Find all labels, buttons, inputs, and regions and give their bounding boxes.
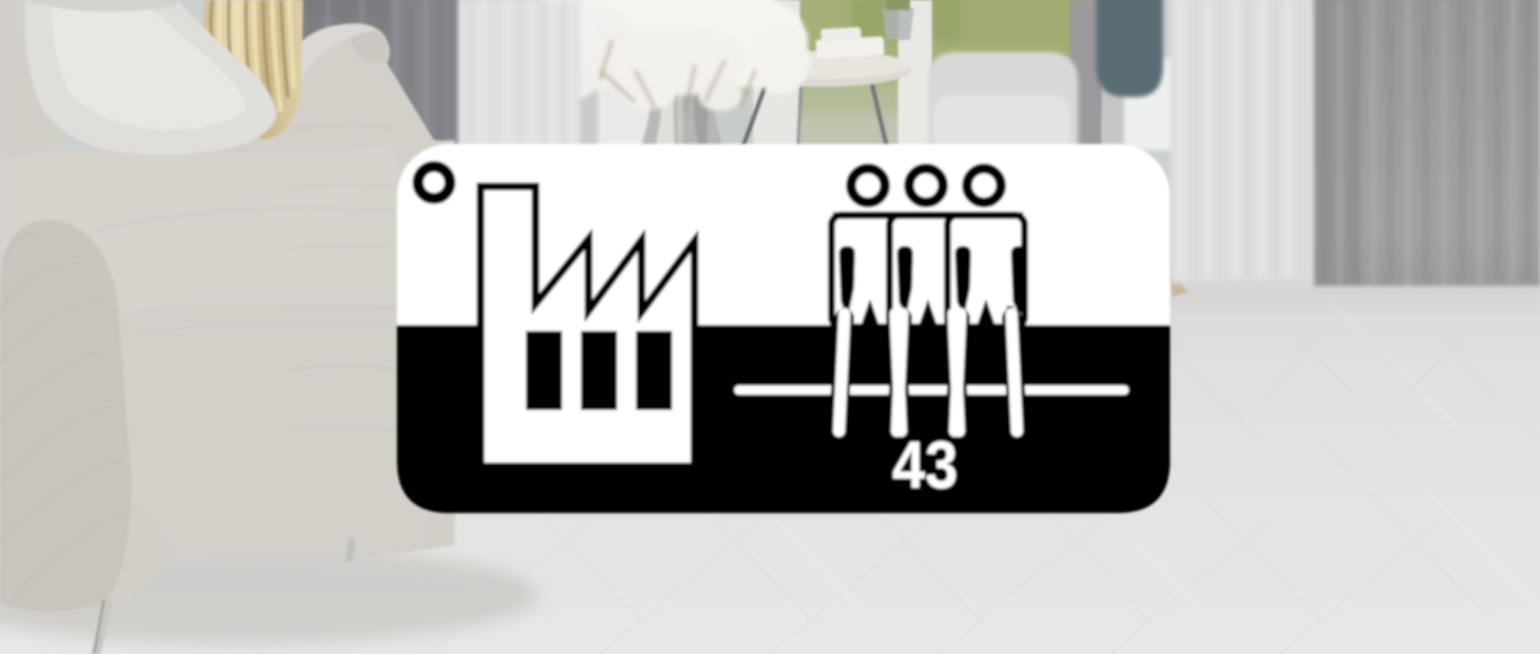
svg-text:43: 43 [892, 429, 958, 503]
